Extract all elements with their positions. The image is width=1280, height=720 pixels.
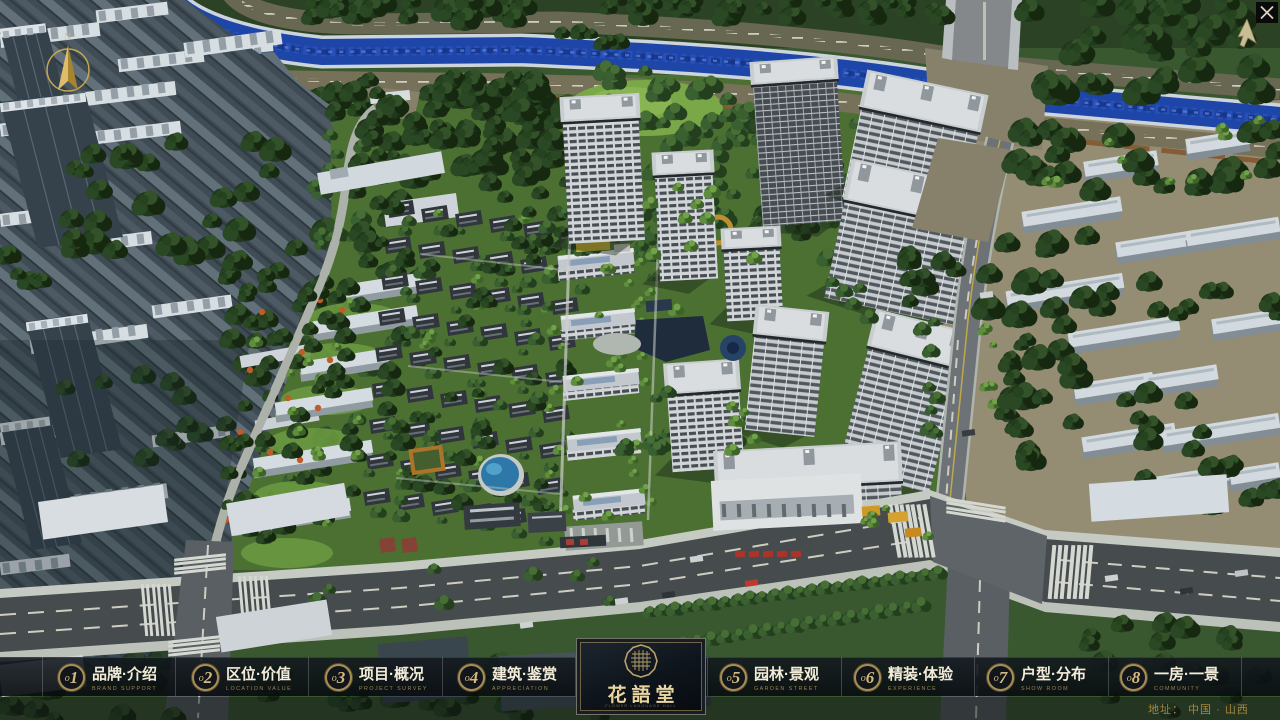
- svg-text:N: N: [64, 32, 71, 43]
